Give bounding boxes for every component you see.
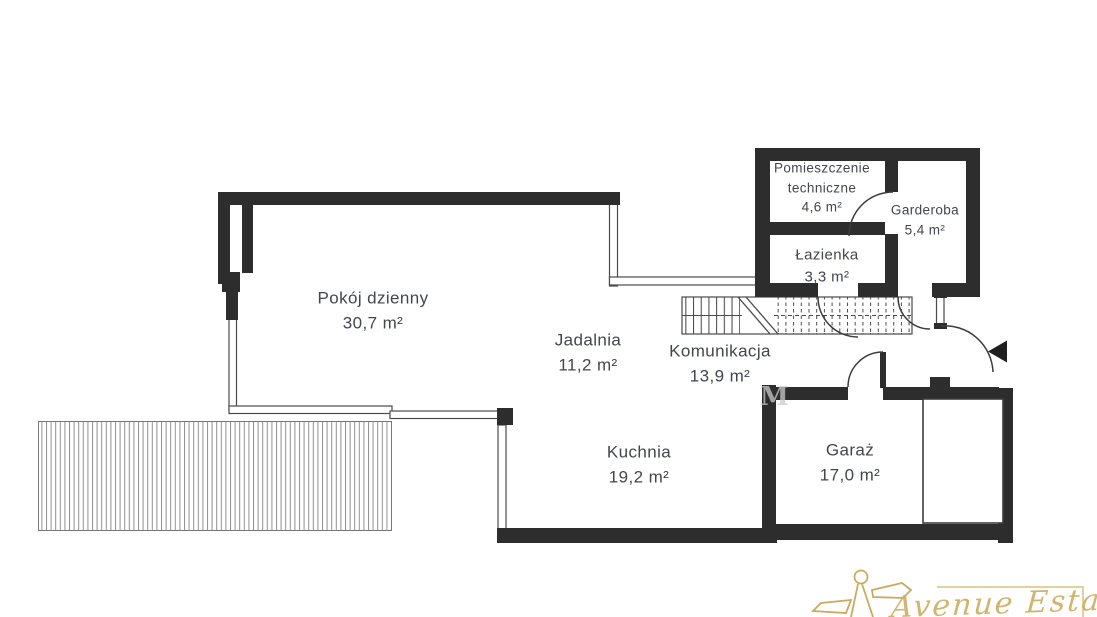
room-name: Komunikacja xyxy=(669,339,771,364)
room-name: Garaż xyxy=(820,438,880,463)
staircase xyxy=(682,297,912,334)
room-area: 4,6 m² xyxy=(758,198,886,218)
room-label-kuchnia: Kuchnia 19,2 m² xyxy=(607,440,671,489)
room-label-garderoba: Garderoba 5,4 m² xyxy=(891,200,959,239)
room-label-jadalnia: Jadalnia 11,2 m² xyxy=(555,328,622,377)
garage-gate xyxy=(923,399,1003,523)
room-area: 13,9 m² xyxy=(669,364,771,389)
room-name: Łazienka xyxy=(795,244,858,266)
room-name: Pokój dzienny xyxy=(317,286,428,311)
terrace-deck xyxy=(39,422,392,531)
floor-plan: Pokój dzienny 30,7 m² Jadalnia 11,2 m² K… xyxy=(0,0,1097,617)
room-area: 5,4 m² xyxy=(891,220,959,240)
room-area: 19,2 m² xyxy=(607,465,671,490)
room-area: 3,3 m² xyxy=(795,266,858,288)
room-area: 11,2 m² xyxy=(555,353,622,378)
room-label-pokoj-dzienny: Pokój dzienny 30,7 m² xyxy=(317,286,428,335)
room-label-garaz: Garaż 17,0 m² xyxy=(820,438,880,487)
room-label-pomieszczenie-techniczne: Pomieszczenie techniczne 4,6 m² xyxy=(758,159,886,218)
room-name: Jadalnia xyxy=(555,328,622,353)
room-name: Pomieszczenie techniczne xyxy=(758,159,886,198)
room-area: 30,7 m² xyxy=(317,311,428,336)
watermark-ghost: M xyxy=(760,382,789,412)
room-label-komunikacja: Komunikacja 13,9 m² xyxy=(669,339,771,388)
room-area: 17,0 m² xyxy=(820,463,880,488)
room-name: Garderoba xyxy=(891,200,959,220)
room-label-lazienka: Łazienka 3,3 m² xyxy=(795,244,858,288)
floor-plan-drawing xyxy=(0,0,1097,617)
room-name: Kuchnia xyxy=(607,440,671,465)
